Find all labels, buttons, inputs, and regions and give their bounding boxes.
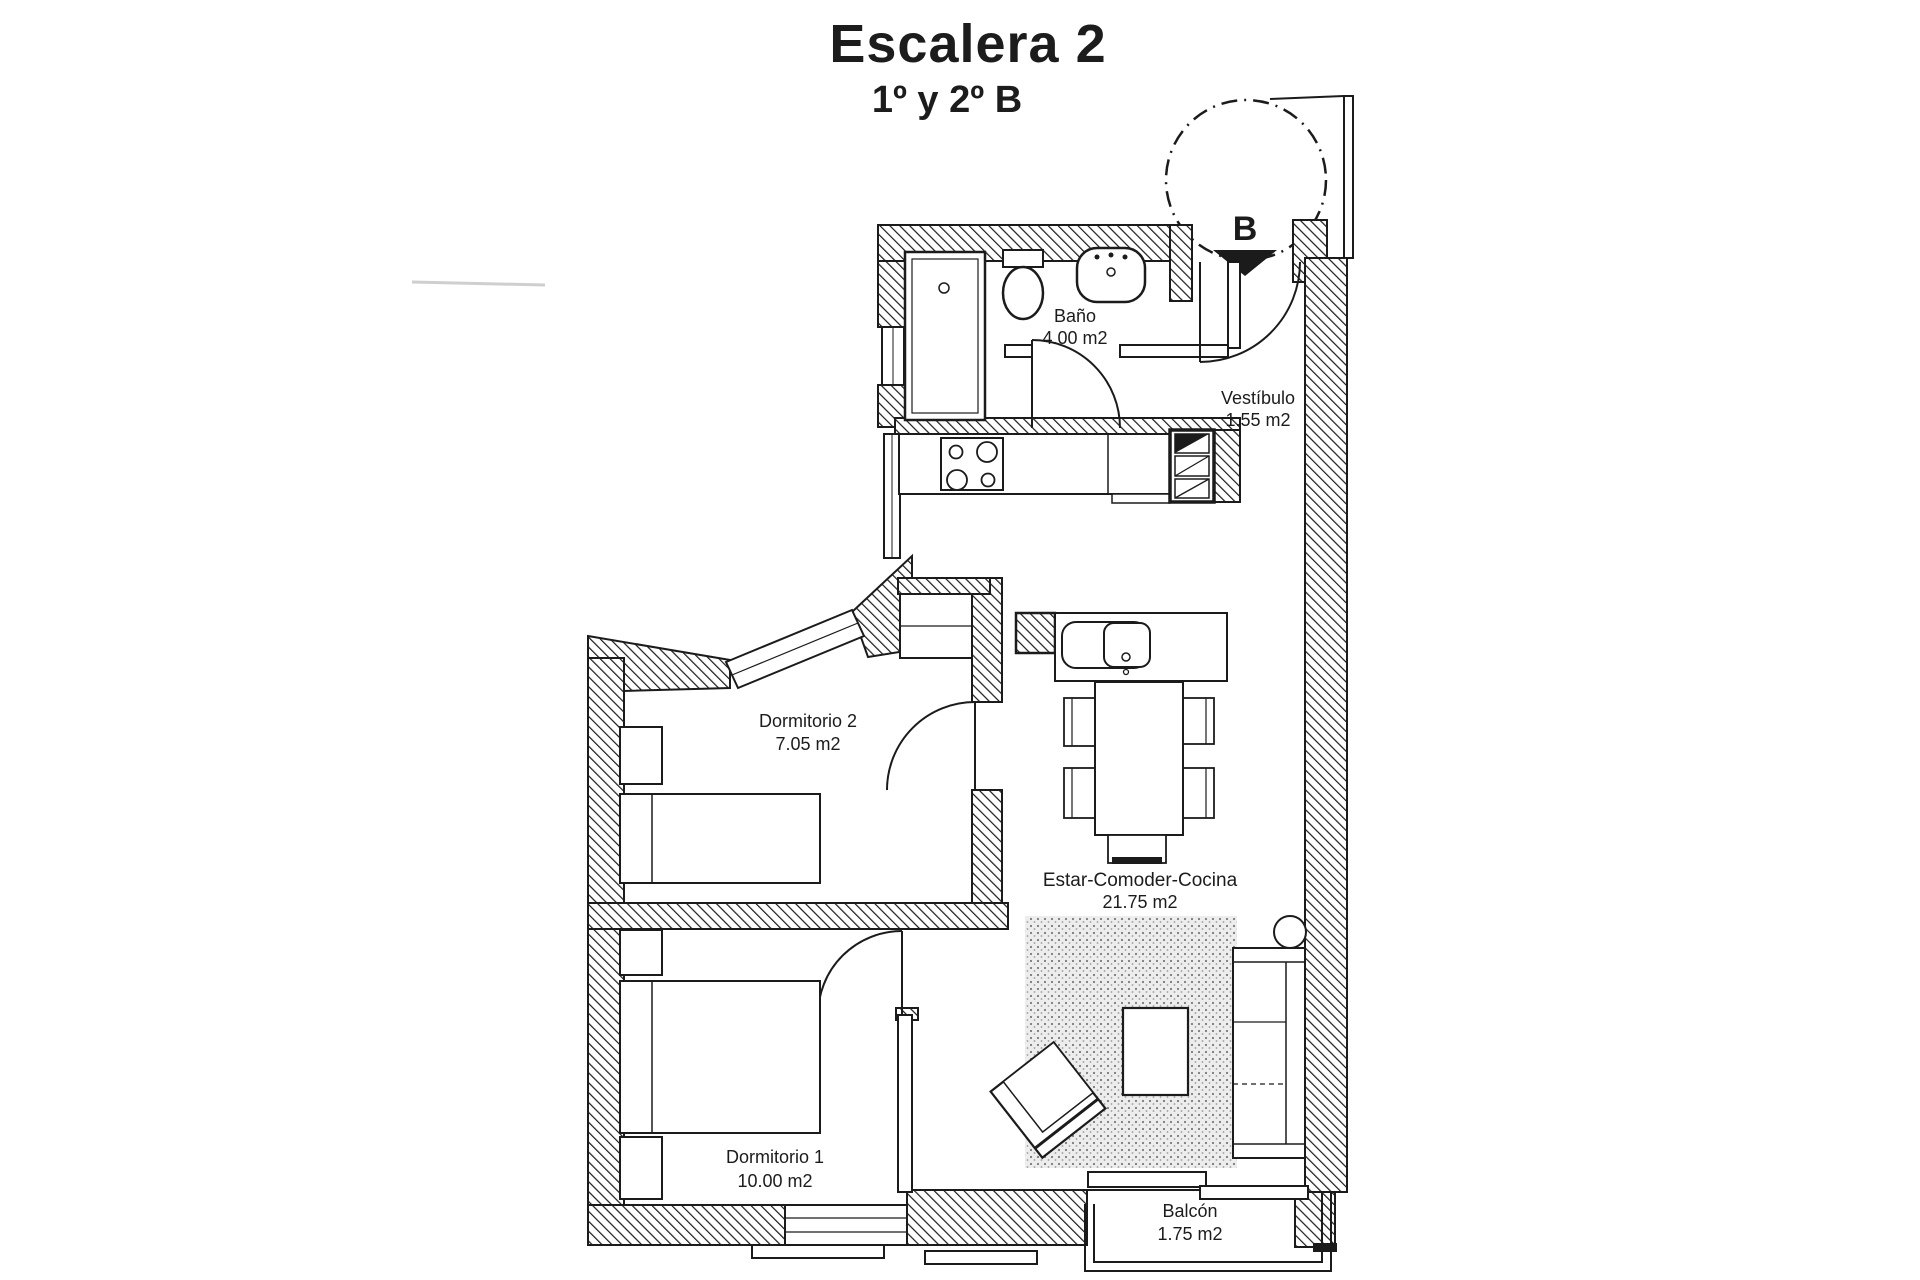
sink-tap-dot2 [1109, 253, 1114, 258]
building-edge-line [1270, 96, 1344, 99]
slider-panel-1 [1088, 1172, 1206, 1187]
toilet-bowl [1003, 267, 1043, 319]
kitchen [899, 430, 1214, 503]
nightstand-d1-bottom [620, 1137, 662, 1199]
wall-behind-appliance-column [1214, 430, 1240, 502]
double-bed [620, 981, 820, 1133]
wall-entrance-left-stub [1170, 225, 1192, 301]
dining-table [1095, 682, 1183, 835]
bano-name: Baño [1054, 306, 1096, 326]
vestibulo-area: 1.55 m2 [1225, 410, 1290, 430]
d1-door-arc [818, 931, 902, 1015]
estar-area: 21.75 m2 [1102, 892, 1177, 912]
balcony-corner-block [1313, 1243, 1337, 1252]
wall-right [1305, 258, 1347, 1192]
bathroom-fixtures [905, 248, 1145, 420]
plan-title: Escalera 2 [829, 14, 1106, 74]
coffee-table [1123, 1008, 1188, 1095]
wall-bedroom-divider [588, 903, 1008, 929]
window-dormitorio1 [785, 1205, 907, 1245]
window-sill-left [752, 1245, 884, 1258]
bano-area: 4.00 m2 [1042, 328, 1107, 348]
floor-plan-page: Escalera 2 1º y 2º B B [0, 0, 1920, 1280]
kitchen-counter-lip [1112, 494, 1170, 503]
dormitorio1-area: 10.00 m2 [737, 1171, 812, 1191]
single-bed [620, 794, 820, 883]
balcon-area: 1.75 m2 [1157, 1224, 1222, 1244]
wall-bottom-left [588, 1205, 785, 1245]
burner-small-1 [950, 446, 963, 459]
entrance-label: B [1233, 210, 1258, 248]
side-table-round [1274, 916, 1306, 948]
chair-bottom-back [1112, 857, 1162, 864]
sofa [1233, 948, 1305, 1158]
entrance-arrow-icon [1213, 250, 1277, 276]
window-sill-right [925, 1251, 1037, 1264]
d2-door-arc [887, 702, 975, 790]
sink-drain [1107, 268, 1115, 276]
chair-right-top [1182, 698, 1214, 744]
bathtub-inner [912, 259, 978, 413]
pillar [1016, 613, 1055, 653]
kitchen-island [1016, 613, 1227, 681]
window-diagonal-mullion [732, 623, 858, 675]
chair-left-bottom [1064, 768, 1096, 818]
nightstand-d1-top [620, 930, 662, 975]
floor-plan-drawing: Escalera 2 1º y 2º B B [0, 0, 1920, 1280]
dormitorio2-area: 7.05 m2 [775, 734, 840, 754]
nightstand-d2 [620, 727, 662, 784]
burner-small-2 [982, 474, 995, 487]
balcon-name: Balcón [1162, 1201, 1217, 1221]
sink-tap-dot3 [1123, 255, 1128, 260]
wall-bath-south-b [1120, 345, 1228, 357]
estar-name: Estar-Comoder-Cocina [1043, 870, 1238, 891]
wall-bottom-right [907, 1190, 1087, 1245]
wall-left [588, 658, 624, 1245]
building-edge-wall [1344, 96, 1353, 258]
vestibulo-name: Vestíbulo [1221, 388, 1295, 408]
chair-left-top [1064, 698, 1096, 746]
slider-panel-2 [1200, 1186, 1308, 1199]
bathtub-drain [939, 283, 949, 293]
toilet-tank [1003, 250, 1043, 267]
bath-door-arc [1032, 340, 1120, 428]
burner-large-1 [977, 442, 997, 462]
scan-artifact [412, 282, 545, 285]
plan-title-block: Escalera 2 1º y 2º B [829, 14, 1106, 121]
island-sink-dot [1124, 670, 1129, 675]
wall-closet-top [898, 578, 990, 594]
wall-d2-east-lower [972, 790, 1002, 903]
plan-subtitle: 1º y 2º B [872, 79, 1022, 121]
wall-bath-south-a [1005, 345, 1032, 357]
chair-right-bottom [1182, 768, 1214, 818]
island-sink-drain [1122, 653, 1130, 661]
burner-large-2 [947, 470, 967, 490]
sink-tap-dot1 [1095, 255, 1100, 260]
wall-vestibule-west [1228, 262, 1240, 348]
wall-d2-east-upper [972, 578, 1002, 702]
dormitorio2-name: Dormitorio 2 [759, 711, 857, 731]
wall-balcony-right [1295, 1192, 1335, 1247]
dining-set [1064, 682, 1214, 864]
wall-d1-partition [898, 1015, 912, 1192]
dormitorio1-name: Dormitorio 1 [726, 1147, 824, 1167]
living-room [991, 916, 1306, 1168]
